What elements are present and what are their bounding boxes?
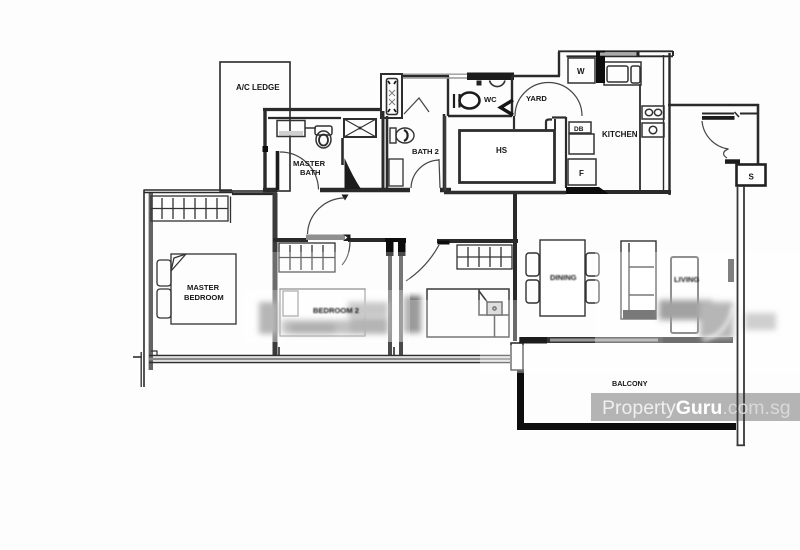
svg-text:HS: HS [496, 146, 508, 155]
svg-text:PropertyGuru.com.sg: PropertyGuru.com.sg [602, 397, 791, 419]
svg-text:KITCHEN: KITCHEN [602, 130, 638, 139]
svg-text:BALCONY: BALCONY [612, 379, 648, 388]
svg-text:YARD: YARD [526, 94, 547, 103]
svg-text:A/C LEDGE: A/C LEDGE [236, 83, 280, 92]
svg-text:F: F [579, 169, 584, 178]
svg-text:MASTER: MASTER [293, 159, 326, 168]
svg-text:WC: WC [484, 95, 497, 104]
svg-text:DINING: DINING [550, 273, 577, 282]
svg-text:DB: DB [574, 126, 584, 133]
svg-text:W: W [577, 67, 585, 76]
svg-text:BEDROOM 2: BEDROOM 2 [313, 306, 359, 315]
svg-text:LIVING: LIVING [674, 275, 699, 284]
svg-text:BATH 2: BATH 2 [412, 147, 439, 156]
svg-text:BEDROOM: BEDROOM [184, 293, 224, 302]
svg-text:BATH: BATH [300, 168, 321, 177]
svg-text:S: S [749, 173, 755, 182]
svg-text:MASTER: MASTER [187, 283, 220, 292]
